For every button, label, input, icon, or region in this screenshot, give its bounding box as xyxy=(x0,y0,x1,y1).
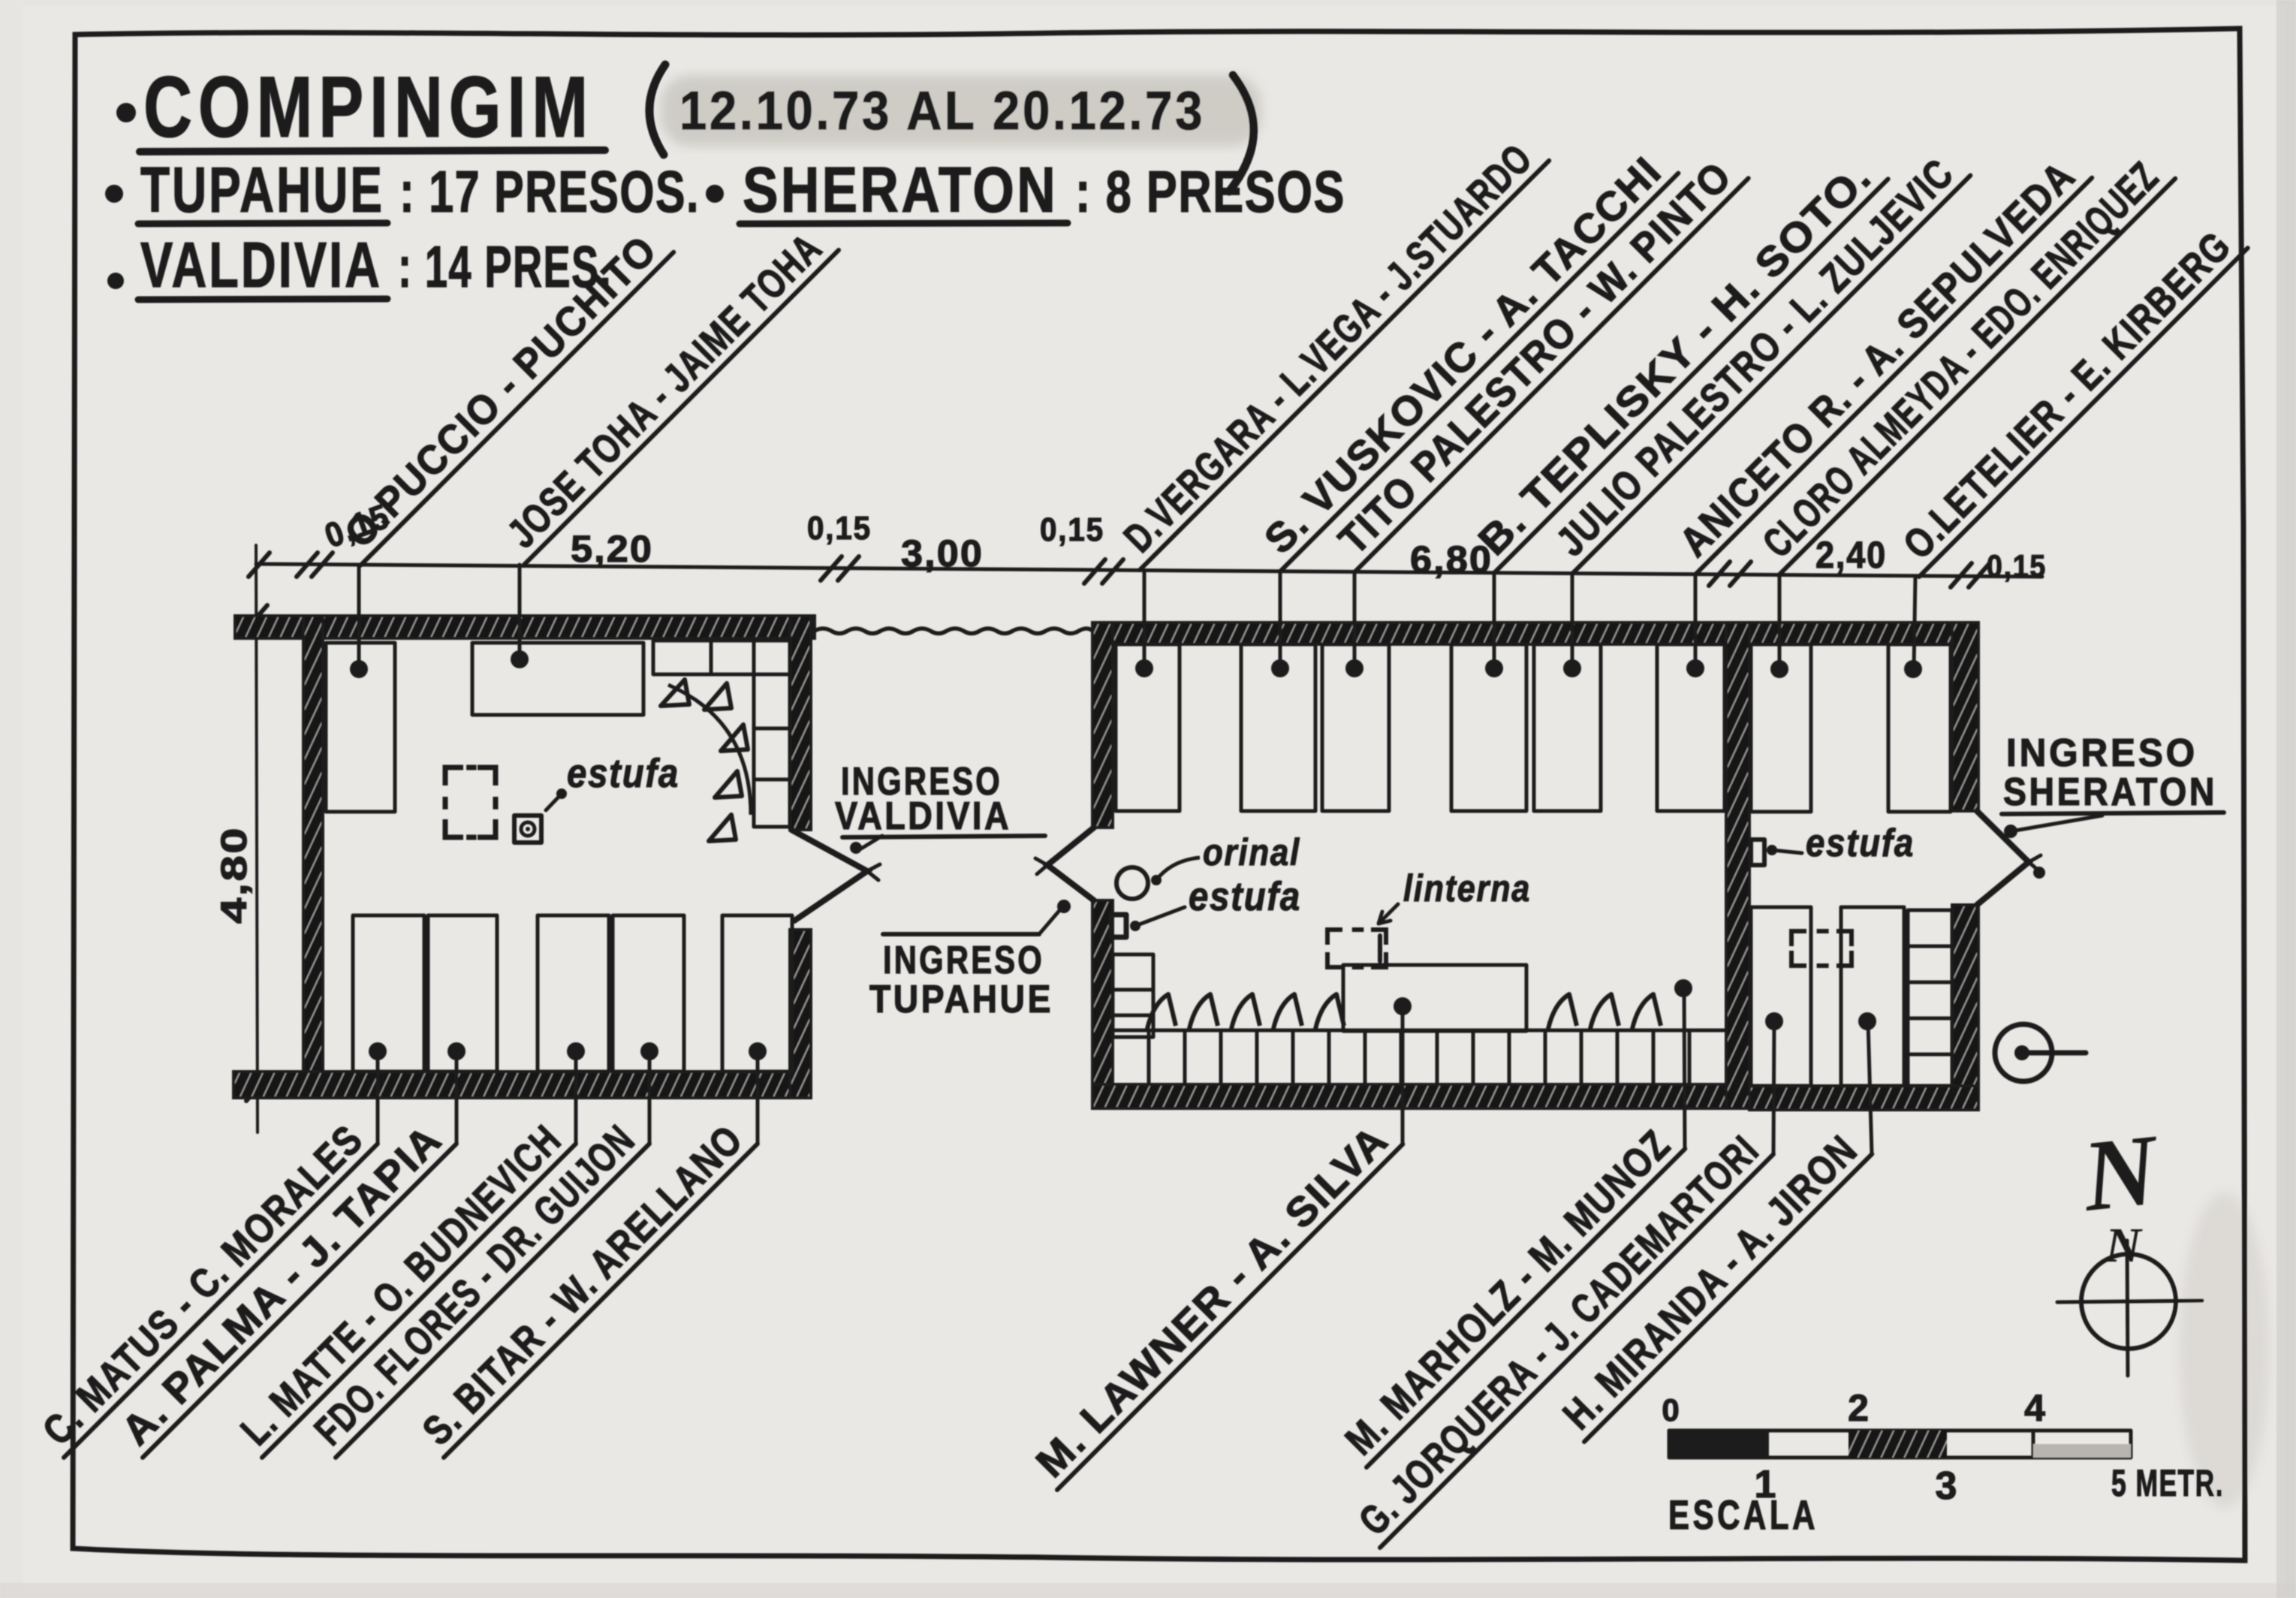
svg-text:ESCALA: ESCALA xyxy=(1668,1491,1818,1538)
svg-text:SHERATON: SHERATON xyxy=(2003,770,2217,814)
svg-text:estufa: estufa xyxy=(567,751,679,796)
svg-text:5,20: 5,20 xyxy=(571,528,653,570)
svg-text:SHERATON: SHERATON xyxy=(743,155,1058,226)
svg-text:5 METR.: 5 METR. xyxy=(2111,1462,2224,1504)
svg-text:INGRESO: INGRESO xyxy=(883,939,1044,982)
svg-text:12.10.73 AL 20.12.73: 12.10.73 AL 20.12.73 xyxy=(679,81,1205,141)
svg-text:6,80: 6,80 xyxy=(1410,538,1493,580)
svg-text:linterna: linterna xyxy=(1403,867,1531,909)
svg-text:: 8 PRESOS: : 8 PRESOS xyxy=(1075,158,1345,225)
svg-text:VALDIVIA: VALDIVIA xyxy=(140,230,382,301)
svg-text:0,15: 0,15 xyxy=(807,510,872,547)
svg-text:TUPAHUE: TUPAHUE xyxy=(140,155,384,226)
svg-text:estufa: estufa xyxy=(1806,822,1915,865)
svg-text:2: 2 xyxy=(1848,1387,1870,1429)
svg-text:4,80: 4,80 xyxy=(215,826,255,924)
svg-text:N: N xyxy=(2105,1218,2143,1273)
svg-text:INGRESO: INGRESO xyxy=(2006,731,2198,775)
svg-text:0: 0 xyxy=(1662,1392,1680,1428)
svg-text:0,15: 0,15 xyxy=(1987,548,2047,583)
svg-text:estufa: estufa xyxy=(1189,874,1301,919)
svg-text:3,00: 3,00 xyxy=(901,532,984,574)
svg-text:N: N xyxy=(2077,1114,2166,1233)
svg-text:0,15: 0,15 xyxy=(1040,511,1104,548)
svg-text:COMPINGIM: COMPINGIM xyxy=(143,59,594,155)
svg-text:4: 4 xyxy=(2024,1387,2047,1429)
svg-text:3: 3 xyxy=(1936,1464,1959,1508)
svg-text:VALDIVIA: VALDIVIA xyxy=(835,794,1011,838)
svg-text:TUPAHUE: TUPAHUE xyxy=(869,978,1053,1021)
svg-text:2,40: 2,40 xyxy=(1815,534,1887,576)
svg-text:orinal: orinal xyxy=(1203,831,1300,873)
svg-text:: 17 PRESOS.: : 17 PRESOS. xyxy=(399,158,700,225)
